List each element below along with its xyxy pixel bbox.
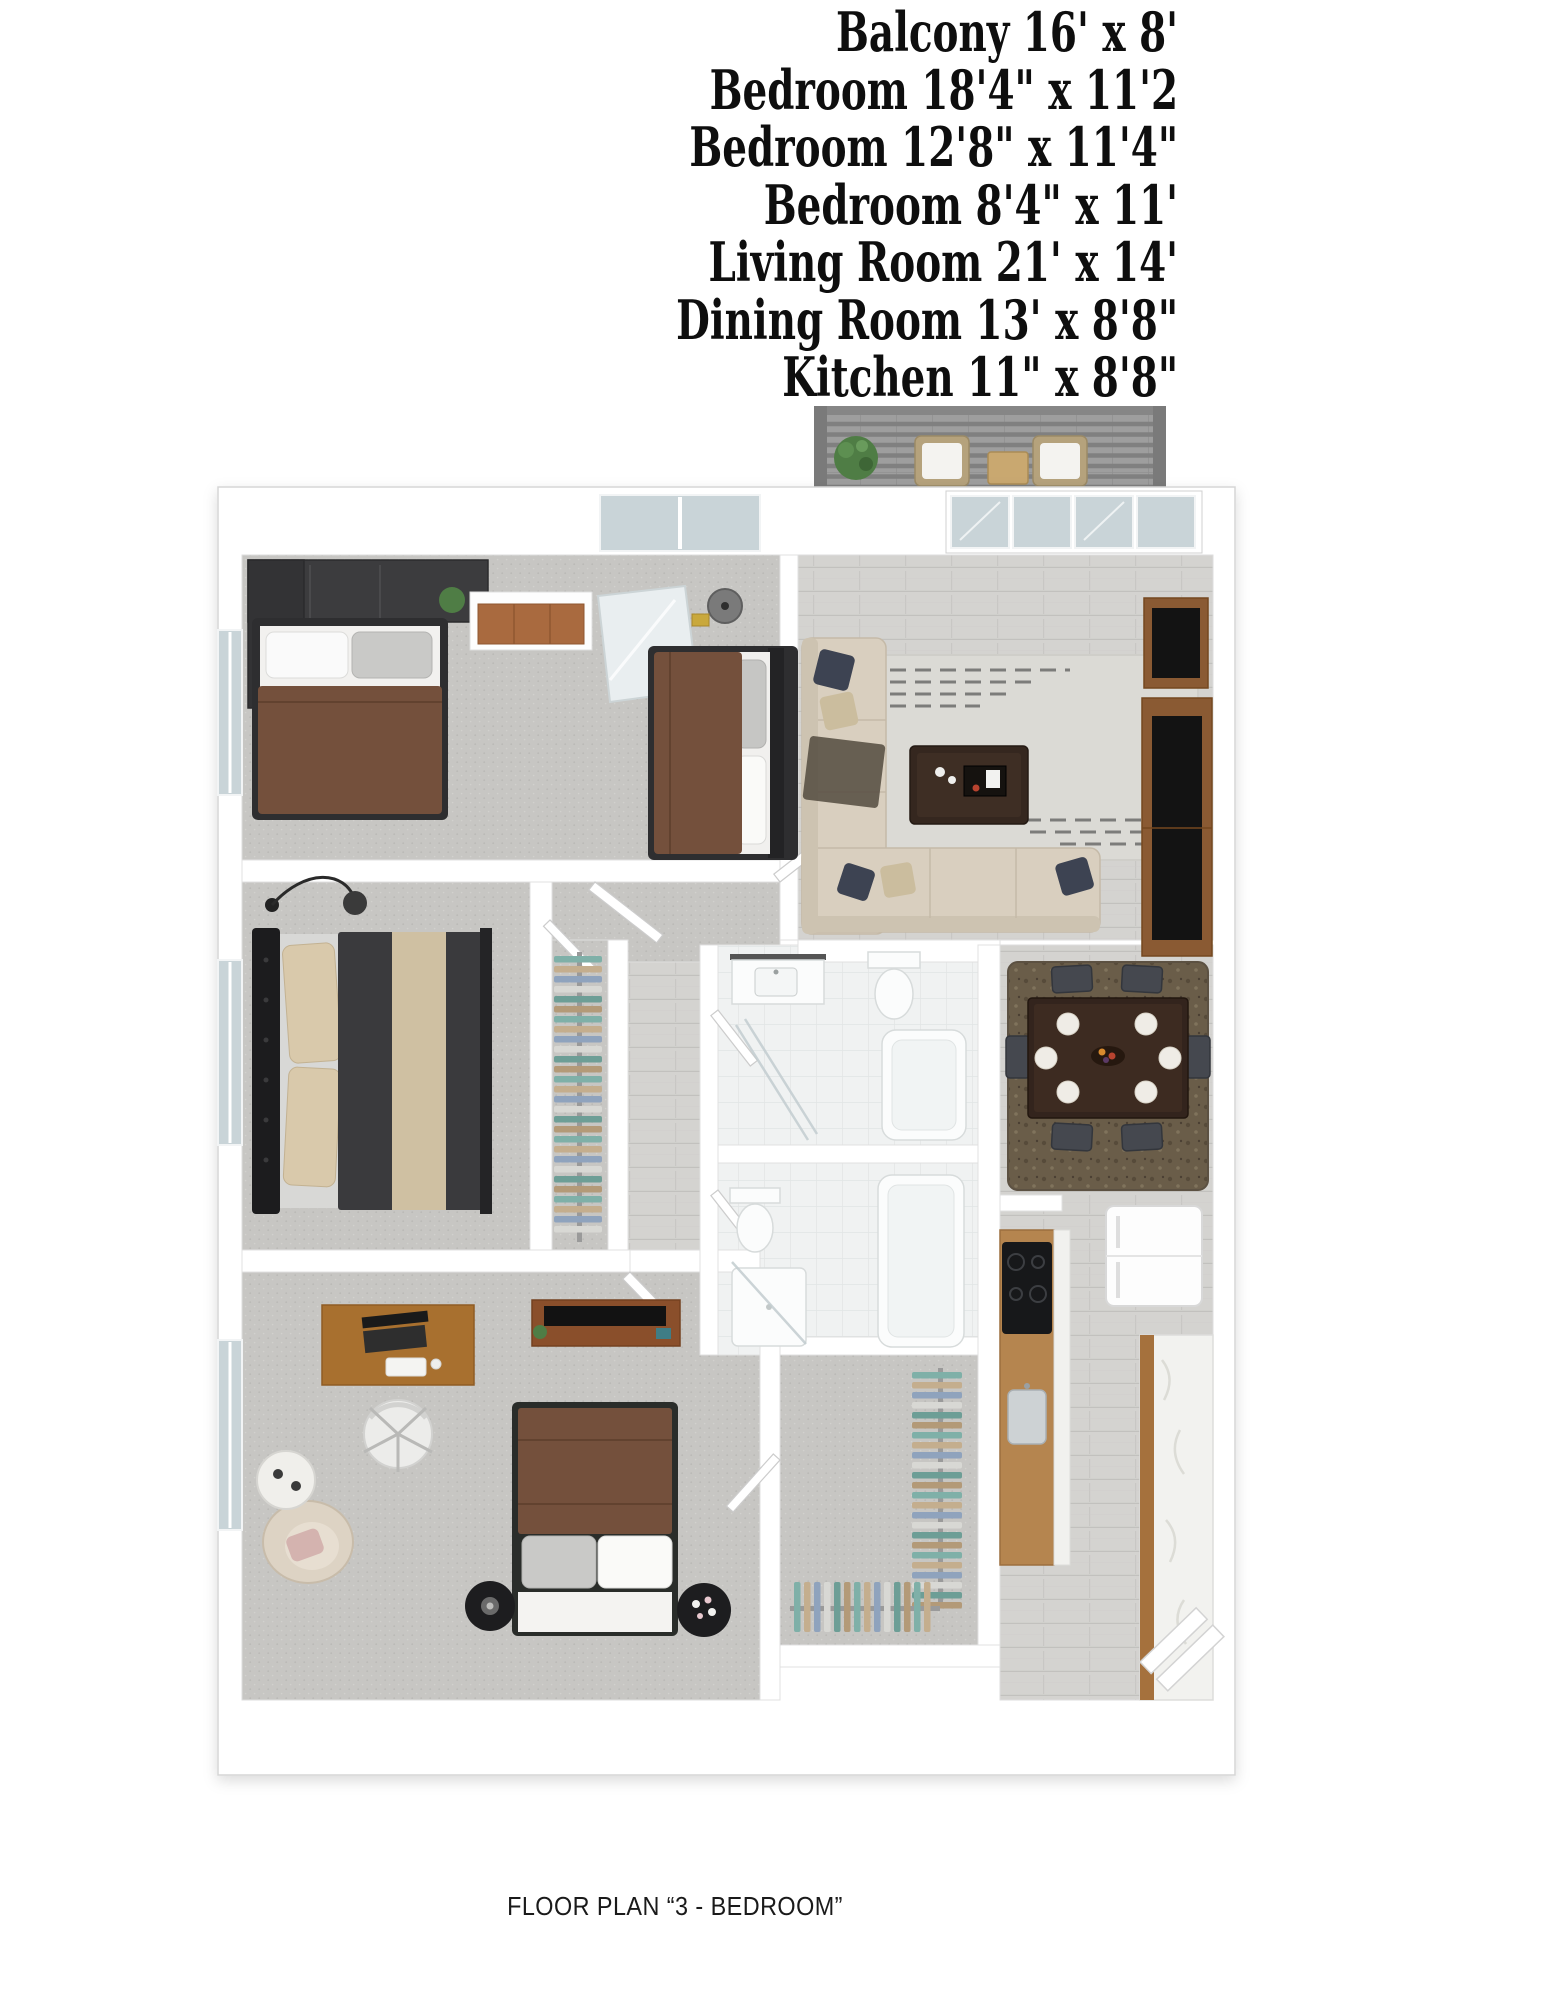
window-icon [218, 1340, 242, 1530]
throw-pillow-icon [879, 861, 916, 898]
throw-pillow-icon [819, 691, 859, 731]
balcony-plant [834, 436, 878, 480]
bed-icon [252, 928, 492, 1214]
books-icon [692, 614, 709, 626]
bed-icon [512, 1402, 678, 1636]
floor-plan-page: Balcony 16' x 8' Bedroom 18'4" x 11'2 Be… [0, 0, 1545, 2000]
bed-icon [252, 618, 448, 820]
floor-plan-svg [140, 400, 1280, 1800]
sink-icon [1008, 1390, 1046, 1444]
hallway-wood-floor [628, 962, 700, 1250]
window-icon [218, 630, 242, 795]
dresser-icon [470, 592, 592, 650]
armchair-icon [263, 1501, 353, 1583]
dining-table-icon [1028, 998, 1188, 1118]
throw-blanket [802, 736, 885, 809]
kitchen-island-icon [1000, 1230, 1070, 1565]
vanity-sink-icon [730, 954, 826, 1004]
nightstand-icon [677, 1583, 731, 1637]
bathtub-icon [878, 1175, 964, 1347]
table-lamp-icon [708, 589, 742, 623]
tv-console-icon [532, 1300, 680, 1346]
shower-icon [732, 1262, 806, 1346]
window-icon [600, 495, 760, 551]
dimension-line-kitchen: Kitchen 11" x 8'8" [676, 349, 1178, 407]
coffee-table-icon [910, 746, 1028, 824]
room-dimension-list: Balcony 16' x 8' Bedroom 18'4" x 11'2 Be… [481, 4, 1178, 407]
dimension-line-bedroom-3: Bedroom 8'4" x 11' [676, 177, 1178, 235]
caption: FLOOR PLAN “3 - BEDROOM” [423, 1891, 927, 1922]
balcony-chair [1033, 436, 1087, 486]
balcony-table [988, 452, 1028, 484]
dimension-line-bedroom-1: Bedroom 18'4" x 11'2 [676, 62, 1178, 120]
dimension-line-living-room: Living Room 21' x 14' [676, 234, 1178, 292]
bed-icon [648, 646, 798, 860]
desk-icon [322, 1305, 474, 1385]
refrigerator-icon [1106, 1206, 1202, 1306]
plant-icon [439, 587, 465, 613]
bathtub-icon [882, 1030, 966, 1140]
side-table-icon [257, 1451, 315, 1509]
dining-area [1006, 962, 1210, 1190]
floor-plan-rendering [140, 400, 1280, 1800]
dimension-line-balcony: Balcony 16' x 8' [676, 4, 1178, 62]
window-icon [218, 960, 242, 1145]
nightstand-icon [465, 1581, 515, 1631]
media-console-icon [1142, 598, 1212, 956]
bottom-bedroom-floor [242, 1272, 760, 1700]
sliding-glass-door [946, 491, 1202, 553]
dimension-line-dining-room: Dining Room 13' x 8'8" [676, 292, 1178, 350]
balcony-chair [915, 436, 969, 486]
dimension-line-bedroom-2: Bedroom 12'8" x 11'4" [676, 119, 1178, 177]
